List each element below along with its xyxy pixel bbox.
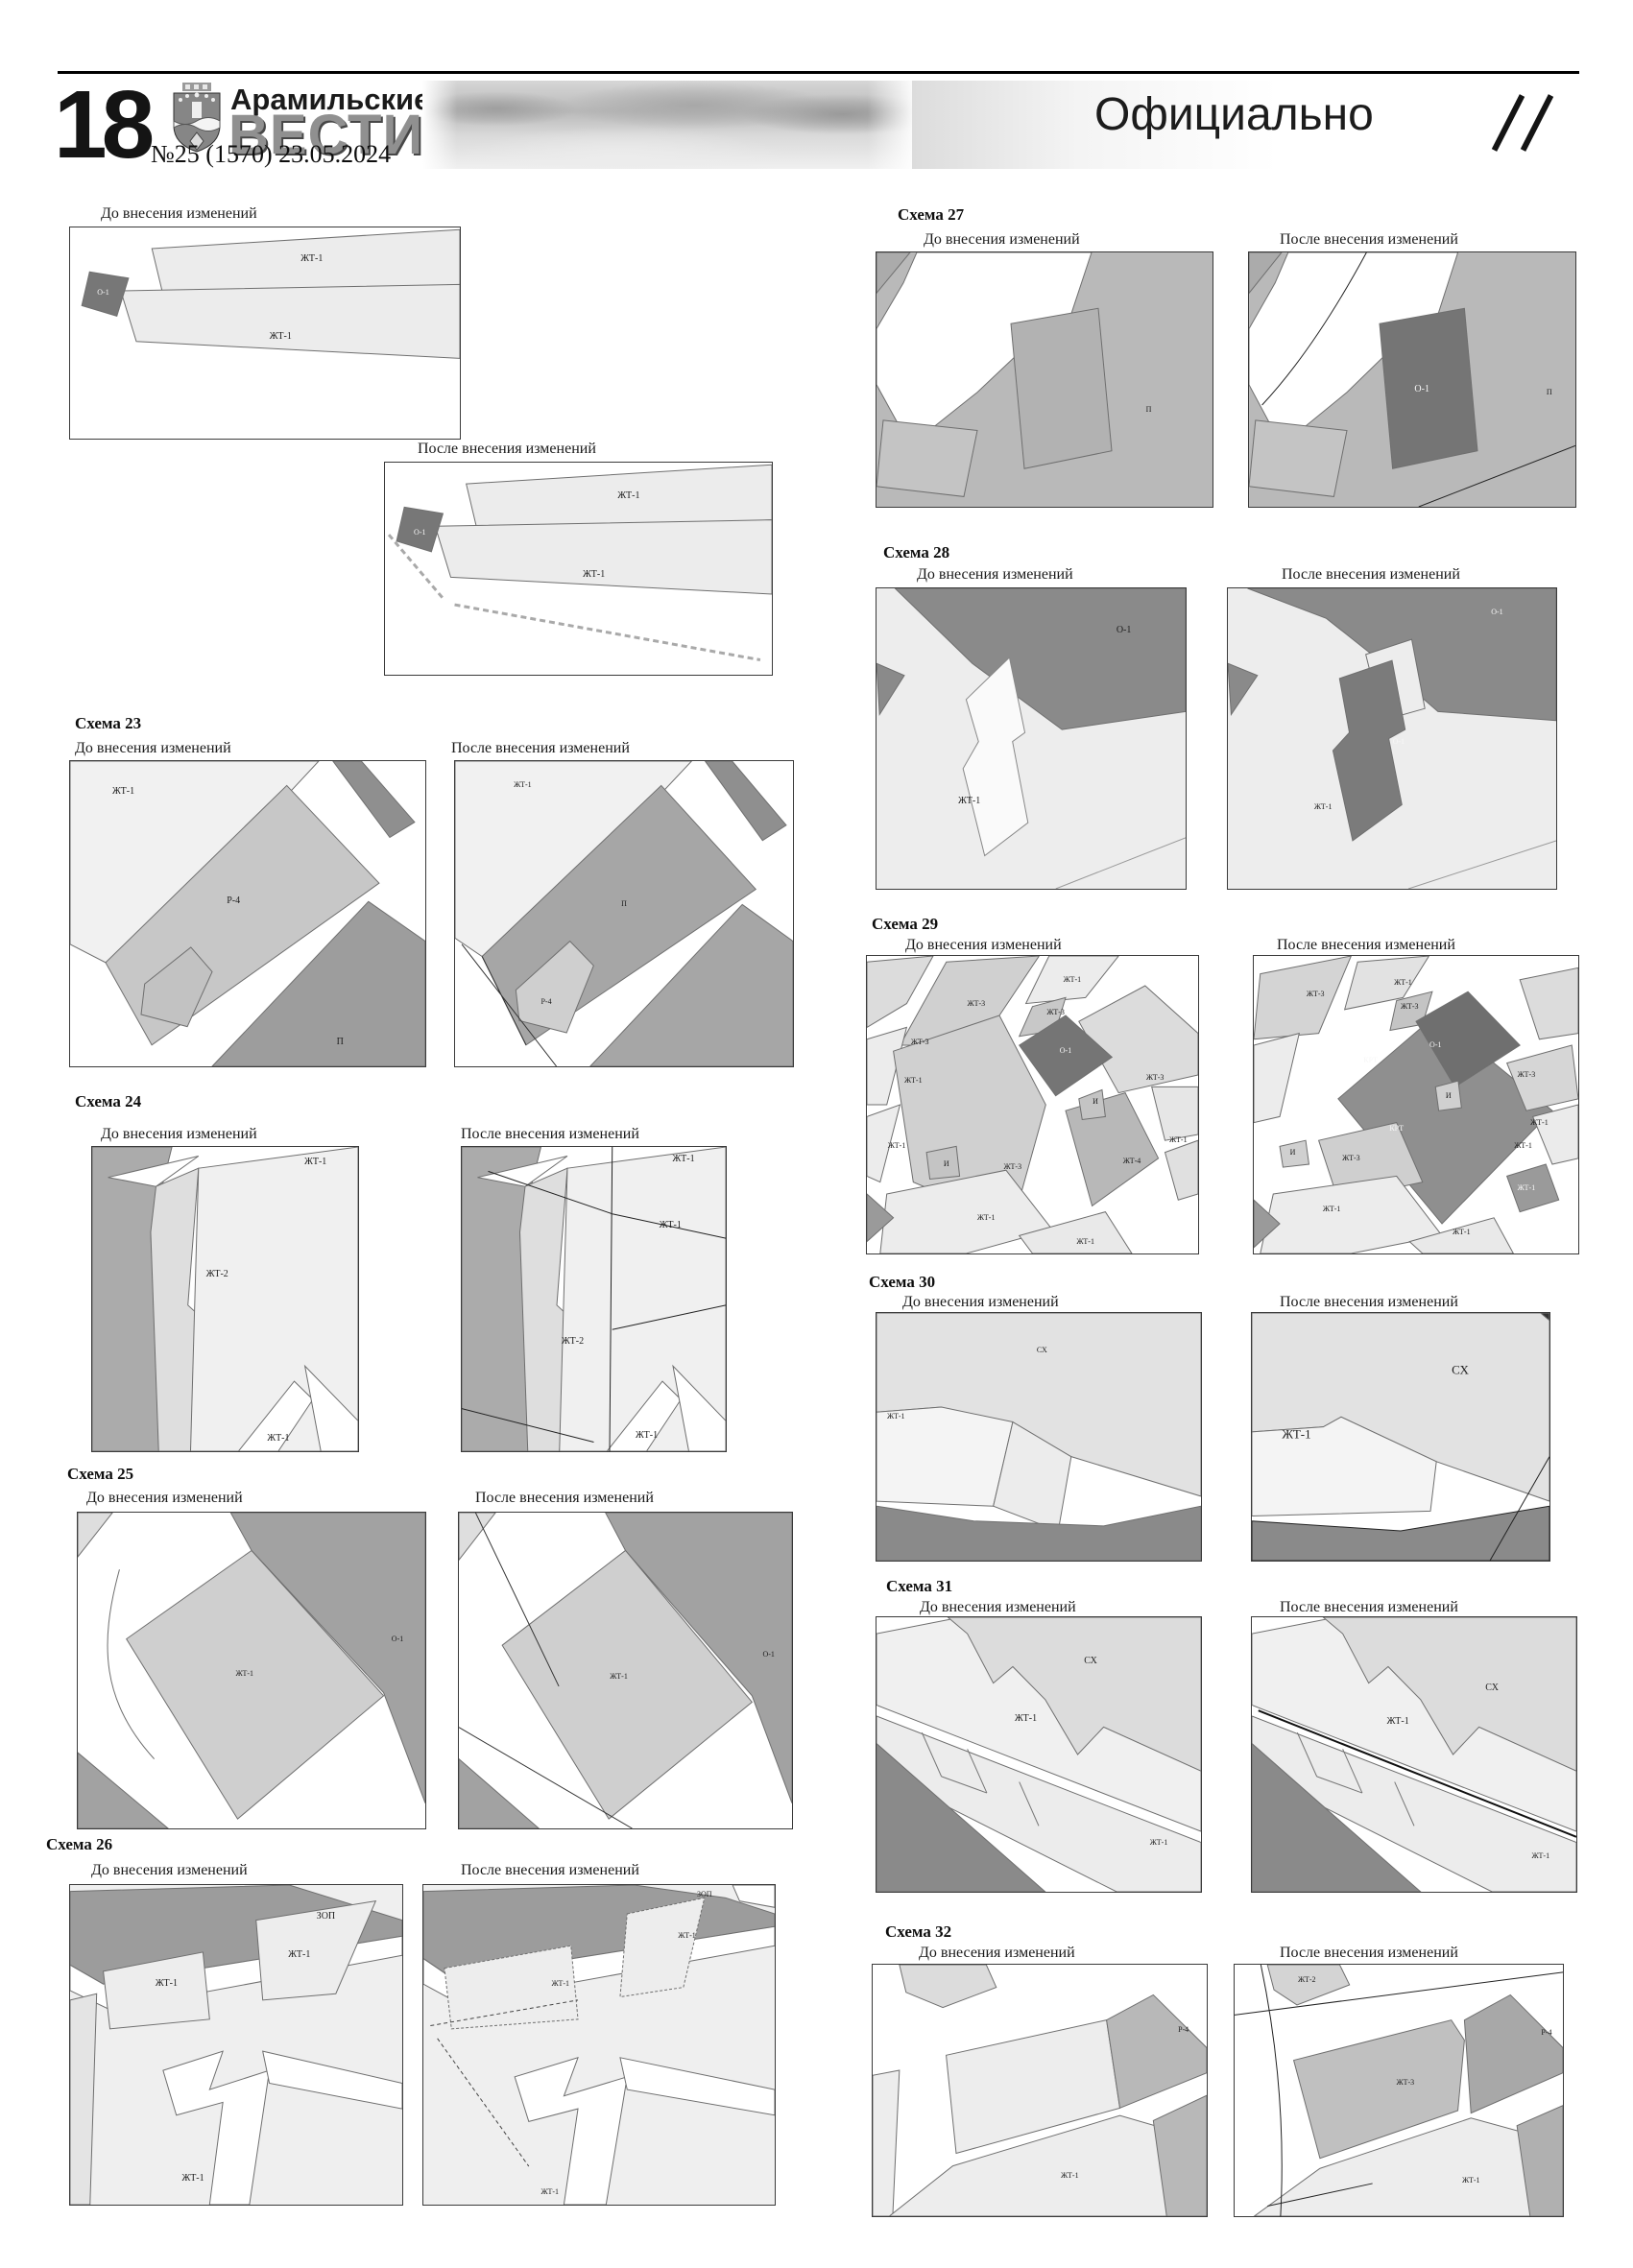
zone-label: КРТ xyxy=(1389,1125,1404,1133)
zone-label: О-1 xyxy=(392,1635,403,1643)
after-label: После внесения изменений xyxy=(461,1126,639,1143)
zone-label: О-1 xyxy=(414,529,425,537)
header-rule xyxy=(58,71,1579,74)
map-25-after: ЖТ-1 О-1 xyxy=(458,1512,793,1829)
map-32-after: ЖТ-2 Р-4 ЖТ-3 ЖТ-1 xyxy=(1234,1964,1564,2217)
zone-label: ЖТ-1 xyxy=(1386,1717,1408,1727)
zone-label: ЖТ-3 xyxy=(968,1000,986,1008)
zone-label: ЖТ-1 xyxy=(1061,2172,1079,2180)
before-label: До внесения изменений xyxy=(917,566,1073,584)
zone-label: ЖТ-1 xyxy=(1453,1229,1471,1236)
zone-label: И xyxy=(944,1160,949,1168)
map-31-after: СХ ЖТ-1 ЖТ-1 xyxy=(1251,1616,1577,1893)
map-27-after: О-1 П xyxy=(1248,251,1576,508)
schema-title: Схема 30 xyxy=(869,1273,935,1292)
before-label: До внесения изменений xyxy=(101,1126,257,1143)
zone-label: ЖТ-1 xyxy=(1394,979,1412,987)
zone-label: П xyxy=(1547,389,1552,396)
zone-label: ЖТ-1 xyxy=(235,1670,253,1678)
map-23-before: ЖТ-1 Р-4 П xyxy=(69,760,426,1067)
zone-label: ЖТ-1 xyxy=(1015,1714,1037,1724)
zone-label: ЖТ-3 xyxy=(1342,1155,1360,1162)
section-title: Официально xyxy=(1094,88,1374,141)
issue-info: №25 (1570) 23.05.2024 xyxy=(151,140,391,169)
schema-title: Схема 24 xyxy=(75,1092,141,1111)
schema-title: Схема 32 xyxy=(885,1922,951,1942)
schema-title: Схема 28 xyxy=(883,543,949,562)
schema-title: Схема 31 xyxy=(886,1577,952,1596)
zone-label: О-1 xyxy=(762,1651,774,1659)
map-30-before: СХ ЖТ-1 xyxy=(876,1312,1202,1562)
zone-label: СХ xyxy=(1037,1347,1047,1354)
zone-label: ЖТ-1 xyxy=(288,1950,310,1960)
before-label: До внесения изменений xyxy=(920,1599,1076,1616)
before-label: До внесения изменений xyxy=(919,1945,1075,1962)
zone-label: ЖТ-1 xyxy=(1530,1119,1549,1127)
zone-label: ЖТ-1 xyxy=(156,1979,178,1989)
before-label: До внесения изменений xyxy=(905,937,1062,954)
zone-label: ЖТ-1 xyxy=(1282,1428,1310,1441)
zone-label: ЖТ-1 xyxy=(904,1077,923,1085)
zone-label: ЖТ-1 xyxy=(1514,1142,1532,1150)
zone-label: О-1 xyxy=(97,289,108,297)
before-label: До внесения изменений xyxy=(91,1862,248,1879)
after-label: После внесения изменений xyxy=(1277,937,1455,954)
map-29-after: ЖТ-3 ЖТ-1 ЖТ-3 О-1 КРТ ЖТ-3 И ЖТ-1 КРТ И… xyxy=(1253,955,1579,1254)
zone-label: О-1 xyxy=(1429,1041,1441,1049)
before-label: До внесения изменений xyxy=(101,205,257,223)
zone-label: ЖТ-1 xyxy=(958,797,980,806)
before-label: До внесения изменений xyxy=(902,1294,1059,1311)
zone-label: ЖТ-3 xyxy=(911,1039,929,1046)
zone-label: ЖТ-2 xyxy=(1298,1976,1316,1984)
schema-title: Схема 26 xyxy=(46,1835,112,1854)
zone-label: ЖТ-3 xyxy=(1401,1003,1419,1011)
zone-label: О-1 xyxy=(1491,609,1502,616)
map-24-after: ЖТ-1 ЖТ-1 ЖТ-2 ЖТ-1 xyxy=(461,1146,727,1452)
after-label: После внесения изменений xyxy=(1280,1945,1458,1962)
map-30-after: СХ ЖТ-1 xyxy=(1251,1312,1550,1562)
zone-label: СХ xyxy=(1452,1364,1469,1376)
zone-label: ЖТ-1 xyxy=(112,787,134,797)
zone-label: ЖТ-1 xyxy=(1462,2177,1480,2184)
map-26-before: ЗОП ЖТ-1 ЖТ-1 ЖТ-1 xyxy=(69,1884,403,2206)
zone-label: ЖТ-1 xyxy=(540,2188,559,2196)
zone-label: ЖТ-2 xyxy=(562,1337,584,1347)
zone-label: СХ xyxy=(1485,1683,1499,1693)
map-28-before: О-1 ЖТ-1 xyxy=(876,587,1187,890)
zone-label: ЖТ-1 xyxy=(888,1142,906,1150)
map-23-after: ЖТ-1 П Р-4 xyxy=(454,760,794,1067)
zone-label: О-1 xyxy=(1393,738,1405,746)
zone-label: ЖТ-1 xyxy=(1064,976,1082,984)
zone-label: ЖТ-1 xyxy=(672,1155,694,1164)
before-label: До внесения изменений xyxy=(86,1490,243,1507)
zone-label: Р-4 xyxy=(227,896,240,906)
map-32-before: Р-4 ЖТ-1 xyxy=(872,1964,1208,2217)
zone-label: И xyxy=(1093,1098,1098,1106)
zone-label: ЖТ-1 xyxy=(678,1932,696,1940)
zone-label: Р-4 xyxy=(1541,2029,1551,2037)
map-31-before: СХ ЖТ-1 ЖТ-1 xyxy=(876,1616,1202,1893)
map-24-before: ЖТ-1 ЖТ-2 ЖТ-1 xyxy=(91,1146,359,1452)
zone-label: ЖТ-1 xyxy=(270,332,292,342)
after-label: После внесения изменений xyxy=(1280,231,1458,249)
zone-label: ЖТ-1 xyxy=(636,1431,658,1441)
zone-label: ЖТ-1 xyxy=(617,491,639,501)
schema-title: Схема 27 xyxy=(898,205,964,225)
before-label: До внесения изменений xyxy=(924,231,1080,249)
zone-label: ЖТ-1 xyxy=(267,1434,289,1444)
zone-label: ЖТ-1 xyxy=(551,1980,569,1988)
after-label: После внесения изменений xyxy=(475,1490,654,1507)
zone-label: ЖТ-1 xyxy=(304,1158,326,1167)
zone-label: КРТ xyxy=(1363,1057,1378,1064)
zone-label: ЖТ-3 xyxy=(1307,991,1325,998)
zone-label: ЖТ-3 xyxy=(1004,1163,1022,1171)
zone-label: ЖТ-1 xyxy=(977,1214,996,1222)
after-label: После внесения изменений xyxy=(1282,566,1460,584)
after-label: После внесения изменений xyxy=(1280,1294,1458,1311)
after-label: После внесения изменений xyxy=(418,441,596,458)
zone-label: О-1 xyxy=(1414,385,1429,394)
map-0-before: ЖТ-1 ЖТ-1 О-1 xyxy=(69,227,461,440)
zone-label: ЖТ-1 xyxy=(1532,1852,1550,1860)
photo-fade xyxy=(422,81,917,169)
zone-label: ЖТ-1 xyxy=(1323,1206,1341,1213)
zone-label: П xyxy=(1146,406,1152,414)
zone-label: ЖТ-1 xyxy=(1150,1839,1168,1847)
zone-label: П xyxy=(337,1038,344,1047)
zone-label: О-1 xyxy=(1117,626,1132,635)
map-0-after: ЖТ-1 ЖТ-1 О-1 xyxy=(384,462,773,676)
zone-label: ЖТ-3 xyxy=(1046,1009,1065,1016)
schema-title: Схема 25 xyxy=(67,1465,133,1484)
zone-label: ЖТ-1 xyxy=(1076,1238,1094,1246)
before-label: До внесения изменений xyxy=(75,740,231,757)
zone-label: ЖТ-3 xyxy=(1518,1071,1536,1079)
page-number: 18 xyxy=(54,77,149,173)
zone-label: СХ xyxy=(1084,1657,1097,1666)
zone-label: И xyxy=(1446,1092,1452,1100)
zone-label: И xyxy=(1290,1149,1296,1157)
zone-label: ЖТ-1 xyxy=(583,570,605,580)
after-label: После внесения изменений xyxy=(1280,1599,1458,1616)
zone-label: ЖТ-1 xyxy=(1314,803,1333,811)
zone-label: ЖТ-1 xyxy=(514,781,532,789)
map-26-after: ЗОП ЖТ-1 ЖТ-1 ЖТ-1 xyxy=(422,1884,776,2206)
zone-label: ЗОП xyxy=(317,1912,335,1922)
zone-label: ЖТ-1 xyxy=(660,1221,682,1230)
masthead-photo xyxy=(422,81,917,169)
zone-label: ЗОП xyxy=(697,1891,712,1898)
after-label: После внесения изменений xyxy=(451,740,630,757)
zone-label: ЖТ-4 xyxy=(1123,1158,1141,1165)
map-25-before: ЖТ-1 О-1 xyxy=(77,1512,426,1829)
map-28-after: О-1 О-1 ЖТ-1 xyxy=(1227,587,1557,890)
zone-label: ЖТ-1 xyxy=(887,1413,905,1420)
newspaper-page: 18 Арамильские ВЕСТИ №25 (1570) 23.05.20… xyxy=(0,0,1633,2268)
map-27-before: П xyxy=(876,251,1213,508)
schema-title: Схема 29 xyxy=(872,915,938,934)
zone-label: ЖТ-1 xyxy=(181,2174,204,2184)
zone-label: ЖТ-3 xyxy=(1397,2079,1415,2087)
zone-label: О-1 xyxy=(1060,1047,1071,1055)
map-29-before: ЖТ-1 ЖТ-3 ЖТ-3 ЖТ-3 О-1 ЖТ-1 ЖТ-3 И ЖТ-1… xyxy=(866,955,1199,1254)
zone-label: ЖТ-3 xyxy=(1146,1074,1165,1082)
zone-label: Р-4 xyxy=(540,998,551,1006)
schema-title: Схема 23 xyxy=(75,714,141,733)
zone-label: ЖТ-2 xyxy=(206,1270,228,1279)
zone-label: ЖТ-1 xyxy=(1518,1184,1536,1192)
zone-label: П xyxy=(621,900,627,908)
zone-label: Р-4 xyxy=(1178,2026,1189,2034)
zone-label: ЖТ-1 xyxy=(610,1673,628,1681)
zone-label: ЖТ-1 xyxy=(300,254,323,264)
zone-label: ЖТ-1 xyxy=(1169,1136,1188,1144)
after-label: После внесения изменений xyxy=(461,1862,639,1879)
